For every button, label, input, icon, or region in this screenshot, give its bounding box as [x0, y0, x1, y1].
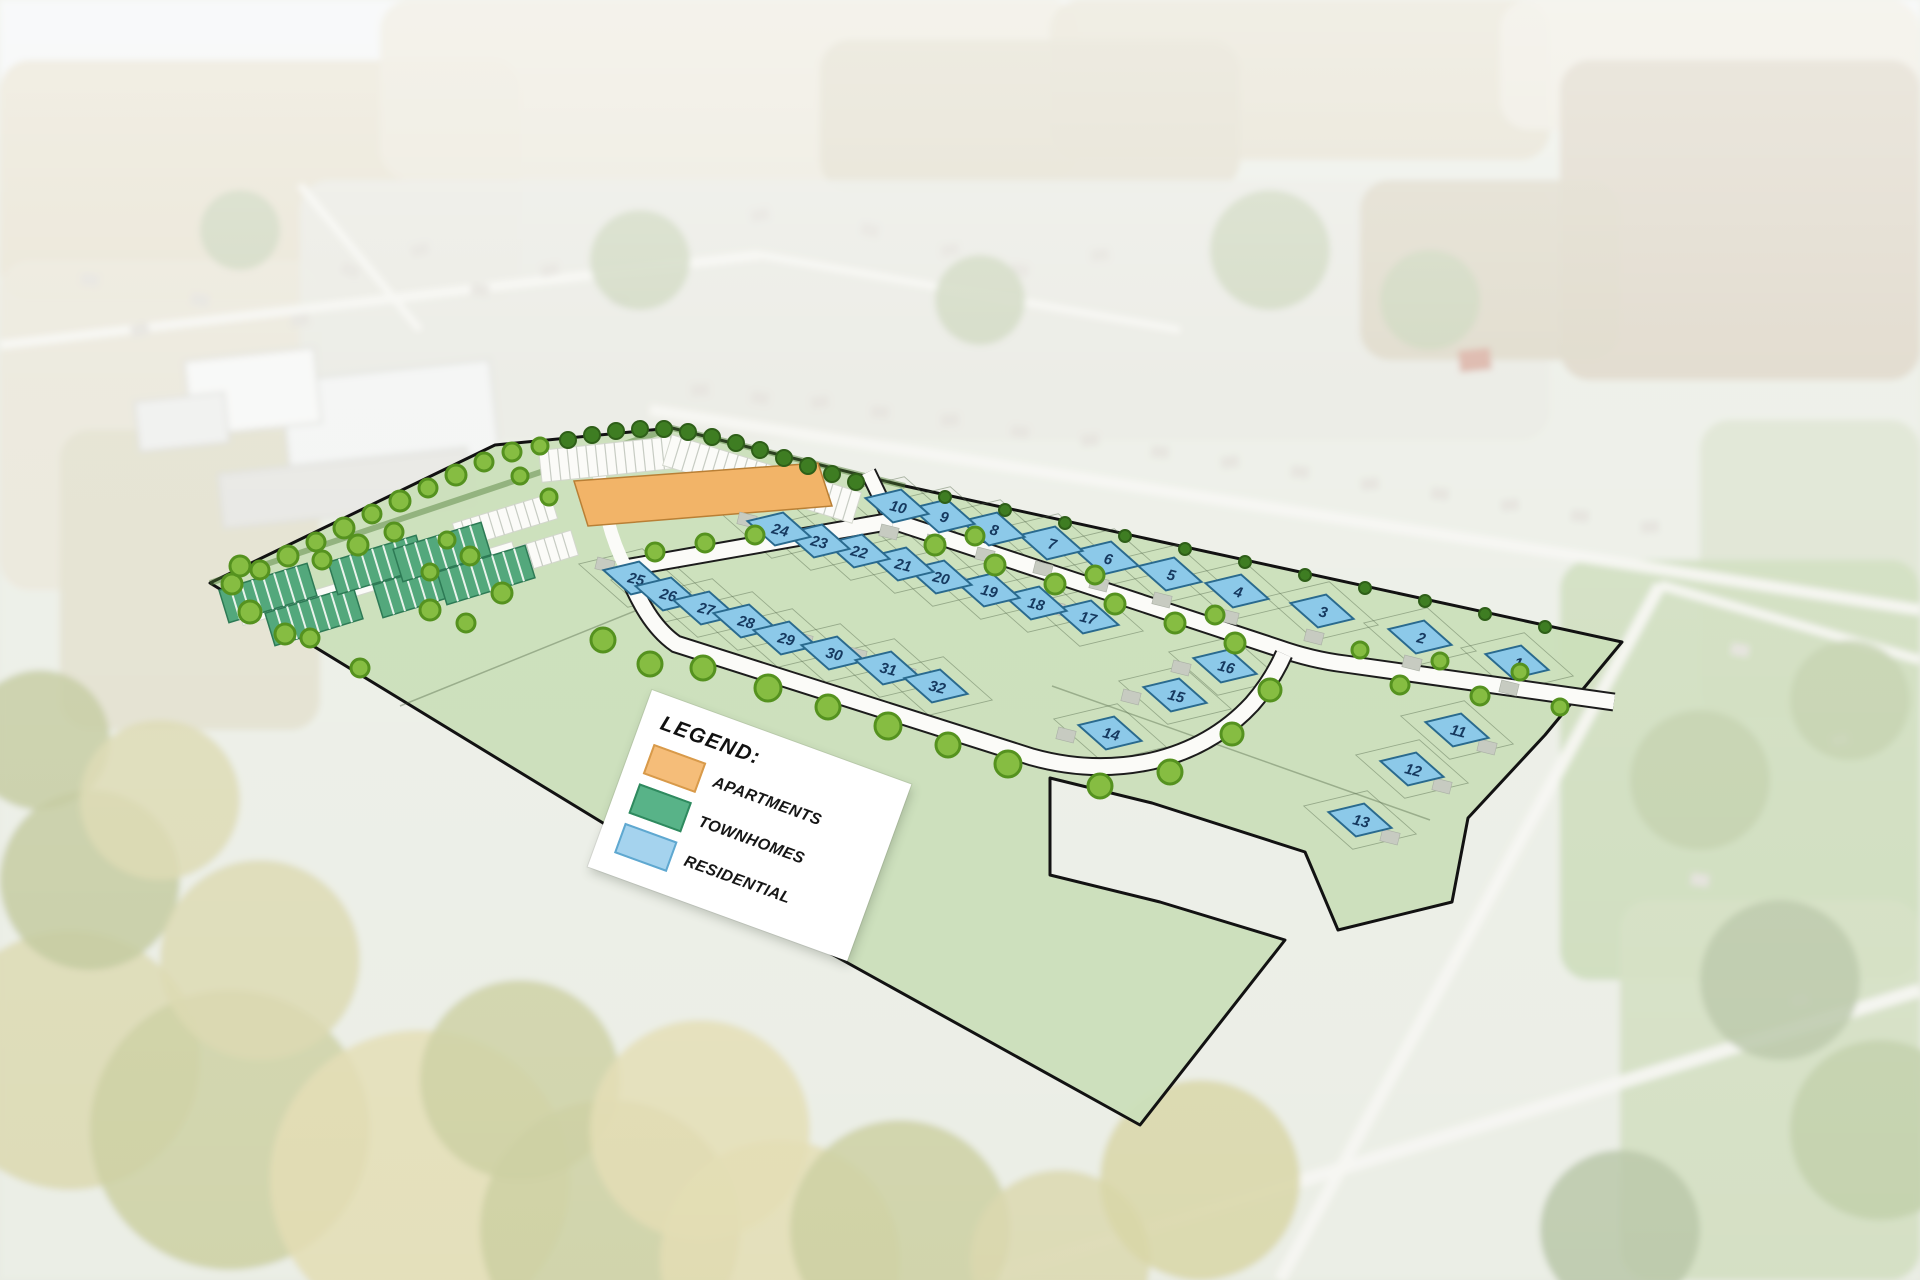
townhomes-swatch: [628, 783, 692, 832]
aerial-site-plan-stage: 1234567891011121314151617181920212223242…: [0, 0, 1920, 1280]
site-plan-rendering: 1234567891011121314151617181920212223242…: [0, 0, 1920, 1280]
residential-swatch: [614, 823, 678, 872]
apartments-swatch: [643, 744, 707, 793]
